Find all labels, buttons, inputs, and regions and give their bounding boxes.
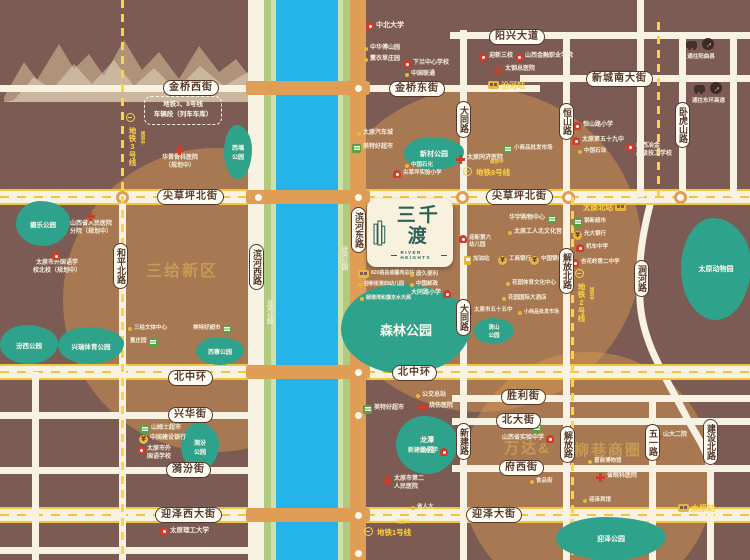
poi-label: 食品街 xyxy=(536,478,553,485)
cart-icon xyxy=(352,144,361,153)
poi-美特好超市: 美特好超市 xyxy=(193,325,232,334)
poi-童庄园: 童庄园 xyxy=(130,338,158,347)
street-capsule-金桥东街: 金桥东街 xyxy=(389,81,445,97)
street-capsule-滨河东路: 滨河东路 xyxy=(351,207,366,253)
bank-icon: ¥ xyxy=(139,435,148,444)
school-icon xyxy=(393,170,401,178)
poi-label: 820路昌盛馨苑总站 xyxy=(371,270,414,276)
poi-烧伤医院: 烧伤医院 xyxy=(418,403,453,412)
school-icon xyxy=(572,137,580,145)
poi-华宇购物中心: 华宇购物中心 xyxy=(509,215,556,224)
location-map: 三给新区万达&柳巷商圈西墕 公园摄乐公园新材公园汾西公园兴瑞体育公园西寨公园漪汾… xyxy=(0,0,750,560)
poi-label: 华晋骨科医院 （规划中） xyxy=(162,155,198,170)
school-icon xyxy=(576,244,584,252)
road-v6 xyxy=(730,35,737,197)
bank-icon: ¥ xyxy=(573,231,582,240)
poi-label: 大同路小学 xyxy=(411,290,441,298)
poi-label: 省眼科医院 xyxy=(607,473,637,481)
poi-label: 太原市第二 人民医院 xyxy=(394,476,424,491)
metro-status: 规划中 xyxy=(140,131,146,145)
poi-label: 山大二院 xyxy=(663,432,687,440)
street-capsule-涧河路: 涧河路 xyxy=(634,260,649,297)
poi-中北大学: 中北大学 xyxy=(366,22,404,31)
metro-icon xyxy=(463,167,472,176)
road-junction xyxy=(252,191,265,204)
poi-中国石油: 中国石油 xyxy=(578,148,606,155)
poi-恒山路小学: 恒山路小学 xyxy=(573,122,613,130)
poi-label: 中国联通 xyxy=(411,71,435,79)
cart-icon xyxy=(140,425,149,434)
poi-label: 花园体育文化中心 xyxy=(512,280,556,287)
road-junction xyxy=(352,82,365,95)
poi-label: 迎泽宾馆 xyxy=(589,497,611,504)
dot-icon xyxy=(578,150,582,154)
poi-公交总站: 公交总站 xyxy=(416,392,446,400)
poi-label: 山西冶金 高级技工学校 xyxy=(636,143,672,158)
dot-icon xyxy=(502,297,506,301)
poi-薰衣草庄园: 薰衣草庄园 xyxy=(364,56,400,64)
metro-label: 地铁2号线 xyxy=(576,283,587,322)
cross-icon xyxy=(494,66,503,75)
metro-status: 规划中 xyxy=(589,287,595,301)
poi-label: 中国建设银行 xyxy=(150,435,186,443)
park-太原动物园: 太原动物园 xyxy=(681,218,750,320)
route-icons: → xyxy=(692,82,725,94)
district-label: 柳巷商圈 xyxy=(574,439,642,460)
cart-icon xyxy=(573,218,582,227)
poi-太原北站: 太原北站 xyxy=(583,203,626,212)
street-capsule-新建路: 新建路 xyxy=(456,423,471,460)
poi-label: 太原理工大学 xyxy=(170,527,209,535)
poi-label: 山西省实验中学 xyxy=(502,435,544,443)
poi-label: 太原第五十九中 xyxy=(582,137,624,145)
poi-颐璟湾和灏京水天阁: 颐璟湾和灏京水天阁 xyxy=(360,295,411,301)
poi-label: 尖草坪实验小学 xyxy=(403,170,442,177)
dot-icon xyxy=(411,506,415,510)
poi-label: 汾河公园 xyxy=(339,246,347,270)
dot-icon xyxy=(583,499,587,503)
poi-label: 烧伤医院 xyxy=(429,403,453,411)
street-capsule-新城南大街: 新城南大街 xyxy=(586,71,653,87)
school-icon xyxy=(366,22,374,30)
road-v1 xyxy=(32,372,39,560)
poi-label: 太钢总医院 xyxy=(505,66,535,74)
logo-subtitle: RIVER HEIGHTS xyxy=(401,250,437,260)
poi-太原工人北文化宫: 太原工人北文化宫 xyxy=(508,229,562,237)
poi-label: 恒山路小学 xyxy=(583,122,613,130)
dot-icon xyxy=(364,47,368,51)
school-icon xyxy=(52,252,60,260)
poi-label: 太原市外国语学 校北校（规划中） xyxy=(33,260,81,275)
street-capsule-金桥西街: 金桥西街 xyxy=(163,80,219,96)
poi-杏花岭第二中学: 杏花岭第二中学 xyxy=(571,259,620,267)
school-icon xyxy=(479,53,487,61)
street-capsule-尖草坪北街: 尖草坪北街 xyxy=(157,189,224,205)
poi-label: 迎新三校 xyxy=(489,53,513,61)
poi-晋商博物馆: 晋商博物馆 xyxy=(588,458,622,465)
logo-building-icon xyxy=(373,207,386,259)
poi-label: 中华傅山园 xyxy=(370,45,400,53)
school-icon xyxy=(459,235,467,243)
poi-label: 机车中学 xyxy=(586,244,608,251)
poi-label: 省人大 xyxy=(417,504,434,511)
poi-label: 汾河公园 xyxy=(264,300,272,324)
street-capsule-尖草坪北街: 尖草坪北街 xyxy=(486,189,553,205)
poi-中国邮政: 中国邮政 xyxy=(410,281,438,288)
street-capsule-北中环: 北中环 xyxy=(392,365,437,381)
poi-美特好超市: 美特好超市 xyxy=(363,405,404,414)
logo-subtitle-row: RIVER HEIGHTS xyxy=(391,250,448,260)
bank-icon: ¥ xyxy=(498,256,507,265)
poi-label: 颐璟湾和灏京水天阁 xyxy=(366,295,411,301)
school-icon xyxy=(403,60,411,68)
street-capsule-迎泽西大街: 迎泽西大街 xyxy=(155,507,222,523)
poi-label: 美特好超市 xyxy=(374,405,404,413)
poi-label: 美特好超市 xyxy=(363,144,393,152)
cart-icon xyxy=(223,325,232,334)
poi-美特好超市: 美特好超市 xyxy=(352,144,393,153)
poi-太原市第二人民医院: 太原市第二 人民医院 xyxy=(383,476,424,491)
poi-花园国际大酒店: 花园国际大酒店 xyxy=(502,295,547,302)
poi-迎新三校: 迎新三校 xyxy=(479,53,513,61)
dot-icon xyxy=(405,164,409,168)
poi-label: 中国石化 xyxy=(411,162,433,169)
road-junction xyxy=(352,191,365,204)
arrow-icon: → xyxy=(702,38,714,50)
cart-icon xyxy=(363,405,372,414)
metro-status: 规划中 xyxy=(490,159,504,165)
poi-label: 太原市五十五中 xyxy=(474,307,513,314)
poi-太原理工大学: 太原理工大学 xyxy=(160,527,209,535)
bus-icon xyxy=(358,270,369,278)
metro-label: 地铁3号线 xyxy=(127,127,138,166)
poi-花园体育文化中心: 花园体育文化中心 xyxy=(506,280,556,287)
road-junction xyxy=(456,191,469,204)
street-capsule-阳兴大道: 阳兴大道 xyxy=(489,29,545,45)
school-icon xyxy=(626,143,634,151)
poi-label: 光大银行 xyxy=(584,231,606,238)
street-capsule-北中环: 北中环 xyxy=(168,370,213,386)
poi-label: 工商银行 xyxy=(509,256,531,263)
poi-中华傅山园: 中华傅山园 xyxy=(364,45,400,53)
district-label: 三给新区 xyxy=(146,257,218,281)
poi-迎新第六幼儿园: 迎新第六 幼儿园 xyxy=(459,235,491,249)
poi-唐久便利: 唐久便利 xyxy=(410,271,438,278)
poi-汾河公园: 汾河公园 xyxy=(264,300,272,324)
cross-icon xyxy=(596,473,605,482)
street-capsule-恒山路: 恒山路 xyxy=(559,103,574,140)
train-icon xyxy=(678,504,689,512)
poi-label: 新建路小学 xyxy=(408,448,438,456)
dot-icon xyxy=(364,58,368,62)
poi-太原第五十九中: 太原第五十九中 xyxy=(572,137,624,145)
poi-label: 小商品批发市场 xyxy=(514,145,553,152)
route-label: 通往阳曲县 xyxy=(686,52,716,60)
poi-label: 杏花岭第二中学 xyxy=(581,259,620,266)
road-junction xyxy=(352,547,365,560)
logo-title: 三千渡 xyxy=(391,206,448,248)
metro-label: 地铁1号线 xyxy=(377,527,411,538)
road-胜利街 xyxy=(452,395,750,402)
poi-label: 钢新超市 xyxy=(584,218,606,225)
poi-山西冶金高级技工学校: 山西冶金 高级技工学校 xyxy=(626,143,672,158)
poi-label: 山姆士超市 xyxy=(151,425,181,433)
dot-icon xyxy=(506,282,510,286)
poi-label: 童庄园 xyxy=(130,338,147,345)
poi-省眼科医院: 省眼科医院 xyxy=(596,473,637,482)
poi-820路昌盛馨苑总站: 820路昌盛馨苑总站 xyxy=(358,270,414,278)
school-icon xyxy=(443,290,451,298)
poi-label: 晋商博物馆 xyxy=(594,458,622,465)
street-capsule-迎泽大街: 迎泽大街 xyxy=(466,507,522,523)
poi-小商品批发市场: 小商品批发市场 xyxy=(503,145,553,154)
school-icon xyxy=(573,122,581,130)
poi-中国联通: 中国联通 xyxy=(405,71,435,79)
car-icon xyxy=(686,41,697,48)
poi-中国石化: 中国石化 xyxy=(405,162,433,169)
poi-钢新超市: 钢新超市 xyxy=(573,218,606,227)
poi-山西金融职业学院: 山西金融职业学院 xyxy=(515,53,573,61)
dot-icon xyxy=(530,480,534,484)
poi-山姆士超市: 山姆士超市 xyxy=(140,425,181,434)
street-capsule-大同路: 大同路 xyxy=(456,299,471,336)
poi-太原站: 太原站 xyxy=(678,504,715,514)
dot-icon xyxy=(410,273,414,277)
cross-icon xyxy=(456,155,465,164)
school-icon xyxy=(515,53,523,61)
poi-机车中学: 机车中学 xyxy=(576,244,608,252)
poi-省人大: 省人大 xyxy=(411,504,434,511)
poi-工商银行: ¥工商银行 xyxy=(498,256,531,265)
dot-icon xyxy=(416,394,420,398)
route-sign: →通往东环高速 xyxy=(692,82,725,104)
poi-label: 山西金融职业学院 xyxy=(525,53,573,61)
street-capsule-胜利街: 胜利街 xyxy=(501,389,546,405)
dot-icon xyxy=(518,311,522,315)
cart-icon xyxy=(547,215,556,224)
poi-太钢总医院: 太钢总医院 xyxy=(494,66,535,75)
poi-label: 三给文体中心 xyxy=(134,325,167,332)
poi-迎新街第四幼儿园: 迎新街第四幼儿园 xyxy=(358,281,404,287)
route-label: 通往东环高速 xyxy=(692,96,725,104)
metro-icon xyxy=(126,113,135,122)
school-icon xyxy=(160,527,168,535)
cross-icon xyxy=(418,403,427,412)
poi-label: 太原市外 国语学校 xyxy=(147,446,171,461)
dot-icon xyxy=(128,327,132,331)
school-icon xyxy=(137,446,145,454)
dot-icon xyxy=(358,283,362,287)
poi-label: 太原北站 xyxy=(583,203,613,212)
poi-新建路小学: 新建路小学 xyxy=(408,448,448,456)
street-capsule-滨河西路: 滨河西路 xyxy=(249,244,264,290)
poi-label: 薰衣草庄园 xyxy=(370,56,400,64)
poi-汾河站: 汾河站 xyxy=(488,81,525,91)
dot-icon xyxy=(360,297,364,301)
train-icon xyxy=(488,81,499,89)
street-capsule-卧虎山路: 卧虎山路 xyxy=(675,102,690,148)
street-capsule-府西街: 府西街 xyxy=(499,460,544,476)
metro-status: 规划中 xyxy=(397,519,411,525)
poi-label: 中北大学 xyxy=(376,22,404,31)
dot-icon xyxy=(508,231,512,235)
cart-icon xyxy=(149,338,158,347)
metro-icon xyxy=(575,269,584,278)
gas-icon xyxy=(464,256,471,265)
dot-icon xyxy=(405,73,409,77)
poi-太原汽车城: 太原汽车城 xyxy=(357,130,393,138)
dot-icon xyxy=(357,132,361,136)
poi-山西省人民医院分院（规划中）: 山西省人民医院 分院（规划中） xyxy=(70,212,112,236)
metro-depot-box: 地铁3、8号线 车辆段（列车车库） xyxy=(144,96,222,125)
poi-迎泽宾馆: 迎泽宾馆 xyxy=(583,497,611,504)
arrow-icon: → xyxy=(710,82,722,94)
poi-label: 迎新第六 幼儿园 xyxy=(469,235,491,249)
poi-太原市外国语学校: 太原市外 国语学校 xyxy=(137,446,171,461)
street-capsule-解放北路: 解放北路 xyxy=(559,248,574,294)
street-capsule-漪汾街: 漪汾街 xyxy=(166,462,211,478)
cart-icon xyxy=(503,145,512,154)
poi-下兰中心学校: 下兰中心学校 xyxy=(403,60,449,68)
poi-加油站: 加油站 xyxy=(464,256,490,265)
metro-icon xyxy=(364,527,373,536)
poi-大同路小学: 大同路小学 xyxy=(411,290,451,298)
cross-icon xyxy=(86,212,95,221)
poi-label: 美特好超市 xyxy=(193,325,221,332)
street-capsule-五一路: 五一路 xyxy=(645,424,660,461)
street-capsule-大同路: 大同路 xyxy=(456,101,471,138)
project-logo-card: 三千渡RIVER HEIGHTS xyxy=(367,199,453,267)
poi-label: 太原站 xyxy=(691,504,715,514)
poi-label: 下兰中心学校 xyxy=(413,60,449,68)
poi-label: 迎新街第四幼儿园 xyxy=(364,281,404,287)
poi-华晋骨科医院（规划中）: 华晋骨科医院 （规划中） xyxy=(162,146,198,170)
street-capsule-建设北路: 建设北路 xyxy=(703,419,718,465)
road-junction xyxy=(352,509,365,522)
poi-太原市五十五中: 太原市五十五中 xyxy=(464,307,513,315)
cross-icon xyxy=(175,146,184,155)
poi-label: 太原汽车城 xyxy=(363,130,393,138)
street-capsule-解放路: 解放路 xyxy=(560,426,575,463)
poi-汾河公园: 汾河公园 xyxy=(339,246,347,270)
poi-label: 太原工人北文化宫 xyxy=(514,229,562,237)
poi-label: 加油站 xyxy=(473,256,490,263)
poi-label: 中国邮政 xyxy=(416,281,438,288)
road-v4 xyxy=(637,0,644,197)
poi-小商品批发市场: 小商品批发市场 xyxy=(518,309,559,315)
metro-label: 地铁8号线 xyxy=(476,167,510,178)
route-icons: → xyxy=(686,38,716,50)
cross-icon xyxy=(383,476,392,485)
road-junction xyxy=(674,191,687,204)
poi-label: 小商品批发市场 xyxy=(524,309,559,315)
poi-光大银行: ¥光大银行 xyxy=(573,231,606,240)
road-府西街 xyxy=(452,465,750,472)
poi-label: 山西省人民医院 分院（规划中） xyxy=(70,221,112,236)
poi-太原市外国语学校北校（规划中）: 太原市外国语学 校北校（规划中） xyxy=(33,252,81,275)
school-icon xyxy=(546,435,554,443)
street-capsule-北大街: 北大街 xyxy=(496,413,541,429)
poi-尖草坪实验小学: 尖草坪实验小学 xyxy=(393,170,442,178)
poi-食品街: 食品街 xyxy=(530,478,553,485)
poi-label: 中国石油 xyxy=(584,148,606,155)
poi-山西省实验中学: 山西省实验中学 xyxy=(502,435,554,443)
poi-中国建设银行: ¥中国建设银行 xyxy=(139,435,186,444)
road-junction xyxy=(352,366,365,379)
dot-icon xyxy=(588,460,592,464)
metro-line xyxy=(657,22,660,197)
train-icon xyxy=(615,203,626,211)
school-icon xyxy=(440,448,448,456)
poi-label: 华宇购物中心 xyxy=(509,215,545,223)
route-sign: →通往阳曲县 xyxy=(686,38,716,60)
poi-label: 公交总站 xyxy=(422,392,446,400)
bank-icon: ¥ xyxy=(530,256,539,265)
poi-三给文体中心: 三给文体中心 xyxy=(128,325,167,332)
street-capsule-兴华街: 兴华街 xyxy=(168,407,213,423)
poi-label: 汾河站 xyxy=(501,81,525,91)
street-capsule-和平北路: 和平北路 xyxy=(113,243,128,289)
poi-label: 唐久便利 xyxy=(416,271,438,278)
dot-icon xyxy=(410,283,414,287)
poi-label: 花园国际大酒店 xyxy=(508,295,547,302)
car-icon xyxy=(694,85,705,92)
